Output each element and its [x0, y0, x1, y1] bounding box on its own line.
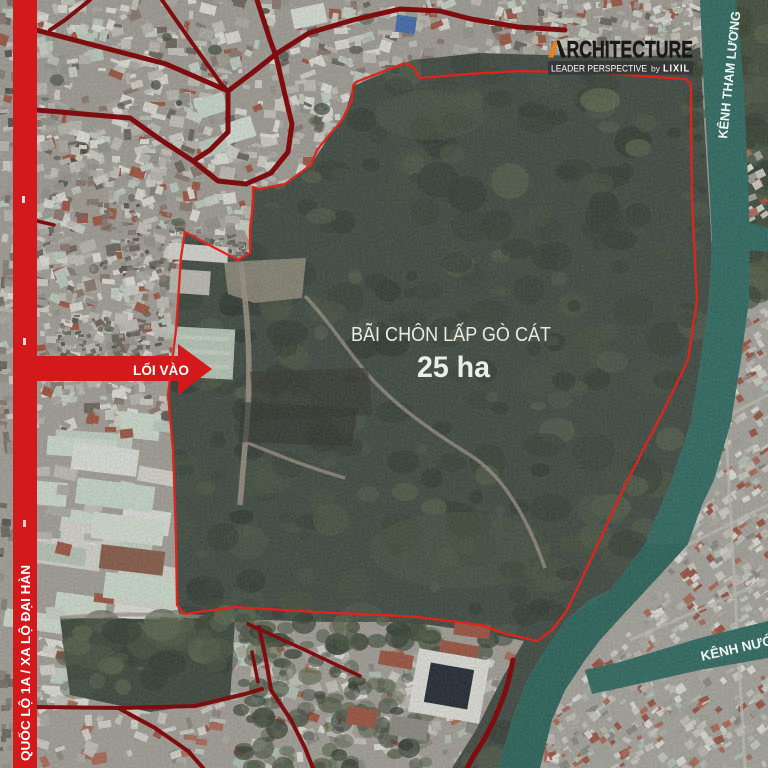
svg-text:BÃI CHÔN LẤP GÒ CÁT: BÃI CHÔN LẤP GÒ CÁT [351, 323, 551, 346]
svg-text:LIXIL: LIXIL [663, 64, 690, 75]
svg-text:LỐI VÀO: LỐI VÀO [133, 363, 189, 378]
svg-text:25 ha: 25 ha [417, 351, 490, 384]
svg-text:QUỐC LỘ 1A / XA LỘ ĐẠI HÀN: QUỐC LỘ 1A / XA LỘ ĐẠI HÀN [18, 565, 33, 761]
svg-text:RCHITECTURE: RCHITECTURE [567, 37, 694, 64]
svg-text:LEADER PERSPECTIVE: LEADER PERSPECTIVE [551, 64, 647, 75]
svg-text:by: by [651, 64, 661, 74]
